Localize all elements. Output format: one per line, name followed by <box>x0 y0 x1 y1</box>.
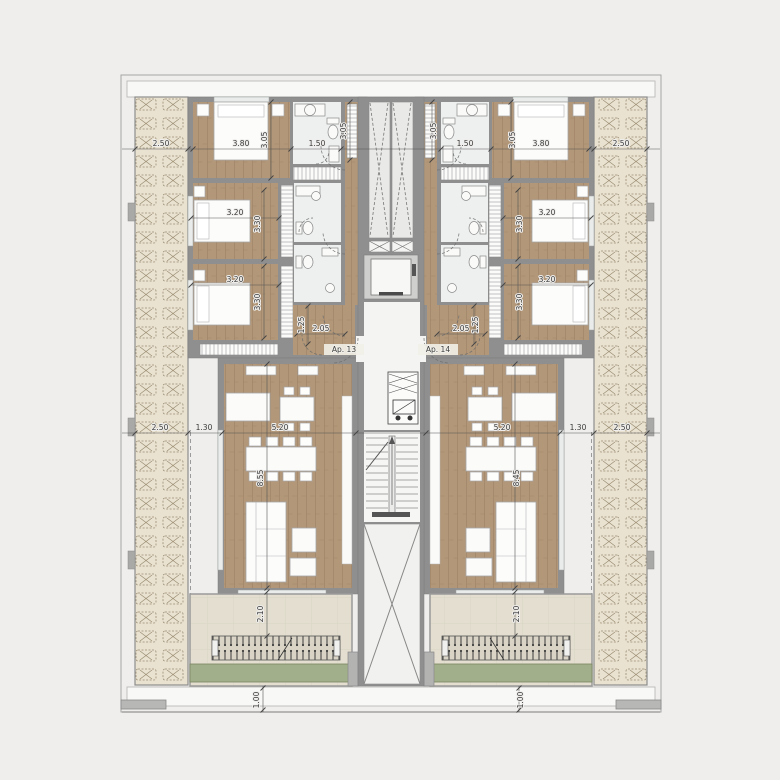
deck-stub <box>128 203 135 221</box>
dim-bed1-width-left: 3.80 <box>233 139 250 148</box>
bed-pillows <box>197 203 209 239</box>
bed-pillows <box>197 286 209 322</box>
dim-deck-top-left: 2.50 <box>153 139 170 148</box>
dim-terrace-depth-left: 2.10 <box>256 605 265 622</box>
top-edge-band <box>127 81 655 97</box>
nightstand <box>197 104 209 116</box>
deck-stub <box>128 551 135 569</box>
dim-bed2-width-right: 3.20 <box>539 208 556 217</box>
dim-terrace-depth-right: 2.10 <box>512 605 521 622</box>
dim-deck-top-right: 2.50 <box>613 139 630 148</box>
dim-living-depth-right: 8.45 <box>512 469 521 486</box>
window <box>188 196 193 246</box>
kitchen-cabinets <box>342 396 352 564</box>
dim-bed2-depth-right: 3.30 <box>515 215 524 232</box>
planter-cap <box>334 640 340 656</box>
dim-bed3-depth-left: 3.30 <box>253 293 262 310</box>
apartment-wing-right <box>415 97 661 709</box>
dim-deck-mid-right: 2.50 <box>614 423 631 432</box>
floor-plan-page: 2.50 3.80 1.50 1.50 3.80 2.50 3.05 3.05 … <box>0 0 780 780</box>
dining-table <box>246 447 316 471</box>
dim-bed2-width-left: 3.20 <box>227 208 244 217</box>
wardrobe <box>347 104 357 158</box>
storage-box <box>388 372 418 424</box>
sofa <box>246 502 286 582</box>
green-strip <box>190 664 350 682</box>
dim-bed3-depth-right: 3.30 <box>515 293 524 310</box>
corner-block <box>121 700 166 709</box>
dim-bed3-width-left: 3.20 <box>227 275 244 284</box>
dim-living-depth-left: 8.55 <box>256 469 265 486</box>
console <box>298 366 318 375</box>
console <box>246 366 276 375</box>
kitchen-counter <box>226 393 270 421</box>
dim-wardrobe-depth-left: 3.05 <box>339 122 348 139</box>
stair-landing-bar <box>372 512 410 517</box>
dim-deck-gap-left: 1.30 <box>196 423 213 432</box>
equipment-wheel <box>396 416 401 421</box>
dim-bath-width-right: 1.50 <box>457 139 474 148</box>
wardrobe <box>281 266 293 338</box>
dim-bed1-depth-right: 3.05 <box>508 131 517 148</box>
bed-pillows <box>218 105 264 117</box>
dim-bed1-depth-left: 3.05 <box>260 131 269 148</box>
window <box>218 430 223 570</box>
pergola-deck <box>135 97 188 685</box>
dim-bed3-width-right: 3.20 <box>539 275 556 284</box>
pillar <box>348 652 358 686</box>
elevator-panel <box>412 264 416 276</box>
window <box>214 97 269 102</box>
kitchen-island <box>280 397 314 421</box>
bottom-walkway-band <box>127 687 655 706</box>
wardrobe <box>293 167 341 180</box>
planter <box>212 636 340 660</box>
planter-cap <box>212 640 218 656</box>
dim-bath-width-left: 1.50 <box>309 139 326 148</box>
nightstand <box>272 104 284 116</box>
coffee-table <box>292 528 316 552</box>
dim-wardrobe-depth-right: 3.05 <box>429 122 438 139</box>
dim-deck-mid-left: 2.50 <box>152 423 169 432</box>
equipment-wheel <box>408 416 413 421</box>
dim-bed2-depth-left: 3.30 <box>253 215 262 232</box>
apartment-label-13: Ap. 13 <box>332 345 356 354</box>
dim-edge-depth-left: 1.00 <box>252 691 261 708</box>
side-table <box>290 558 316 576</box>
dim-living-width-left: 5.20 <box>272 423 289 432</box>
dim-hall-width-left: 2.05 <box>313 324 330 333</box>
apartment-label-14: Ap. 14 <box>426 345 450 354</box>
dim-hall-depth-left: 1.25 <box>297 316 306 333</box>
dim-deck-gap-right: 1.30 <box>570 423 587 432</box>
elevator-car <box>371 259 411 295</box>
dim-hall-width-right: 2.05 <box>453 324 470 333</box>
elevator-door <box>379 292 403 296</box>
nightstand <box>194 270 205 281</box>
apartment-wing-left <box>121 97 367 709</box>
dim-hall-depth-right: 1.25 <box>471 316 480 333</box>
wardrobe <box>200 344 278 355</box>
dim-edge-depth-right: 1.00 <box>516 691 525 708</box>
wardrobe <box>281 185 293 257</box>
nightstand <box>194 186 205 197</box>
floor-plan: 2.50 3.80 1.50 1.50 3.80 2.50 3.05 3.05 … <box>0 0 780 780</box>
dim-living-width-right: 5.20 <box>494 423 511 432</box>
dim-bed1-width-right: 3.80 <box>533 139 550 148</box>
